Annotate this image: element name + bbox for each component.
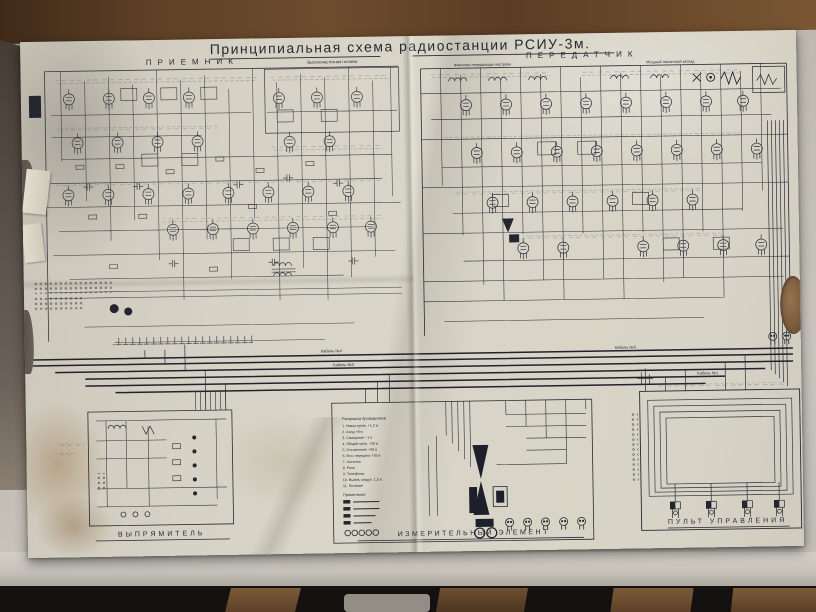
tube-socket-face [769, 332, 777, 344]
receiver-tubes-row1 [63, 85, 362, 113]
panel-switch [706, 501, 716, 517]
audio-transformer [271, 262, 295, 276]
receiver-sublabel: Высокочастотная головка [307, 59, 358, 65]
dark-tube-blob [124, 307, 132, 315]
diagonal-crease [176, 416, 418, 558]
receiver-tubes-row2 [72, 129, 335, 156]
receiver-section: ПРИЕМНИК Высокочастотная головка [28, 54, 402, 347]
panel-switch [774, 500, 784, 516]
wood-slat [436, 588, 528, 612]
modulator-dark-symbol [502, 218, 519, 242]
cable-label: Кабель №4 [321, 348, 343, 353]
cable-label: Кабель №2 [333, 362, 355, 367]
cable-label: Кабель №1 [697, 370, 719, 375]
galvanometer-dark-symbol [468, 445, 507, 528]
panel-switch [670, 502, 680, 518]
receiver-wire-mesh [44, 66, 402, 344]
edge-ink-blot [29, 96, 41, 118]
receiver-components [76, 155, 359, 273]
transmitter-label: ПЕРЕДАТЧИК [526, 49, 639, 60]
transmitter-sublabel-right: Мощный оконечный каскад [646, 60, 695, 65]
panel-switch [742, 501, 752, 517]
connector-pin-field [630, 412, 639, 482]
transmitter-section: ПЕРЕДАТЧИК Фиксатор передающих настроек … [420, 47, 791, 392]
torn-edge-flap [22, 169, 51, 215]
photo-of-schematic: Принципиальная схема радиостанции РСИУ-3… [0, 0, 816, 612]
receiver-label: ПРИЕМНИК [146, 57, 239, 67]
control-label: ПУЛЬТ УПРАВЛЕНИЯ [668, 517, 787, 526]
control-nested-loops [648, 398, 793, 496]
connector-pin-field [95, 473, 107, 491]
wood-slat [225, 588, 301, 612]
schematic-sheet: Принципиальная схема радиостанции РСИУ-3… [20, 30, 804, 558]
right-wire-bundle [767, 120, 787, 386]
cable-label: Кабель №3 [615, 344, 637, 349]
connector-pin-field [34, 297, 82, 310]
dark-tube-blob [110, 304, 119, 313]
transmitter-sublabel-left: Фиксатор передающих настроек [454, 62, 512, 67]
chair-leg-highlight [344, 594, 430, 612]
wood-slat [610, 588, 693, 612]
wood-slat [731, 588, 816, 612]
table-front-edge [0, 552, 816, 588]
control-section: ПУЛЬТ УПРАВЛЕНИЯ [629, 366, 802, 531]
ground-tick-row [113, 335, 253, 346]
